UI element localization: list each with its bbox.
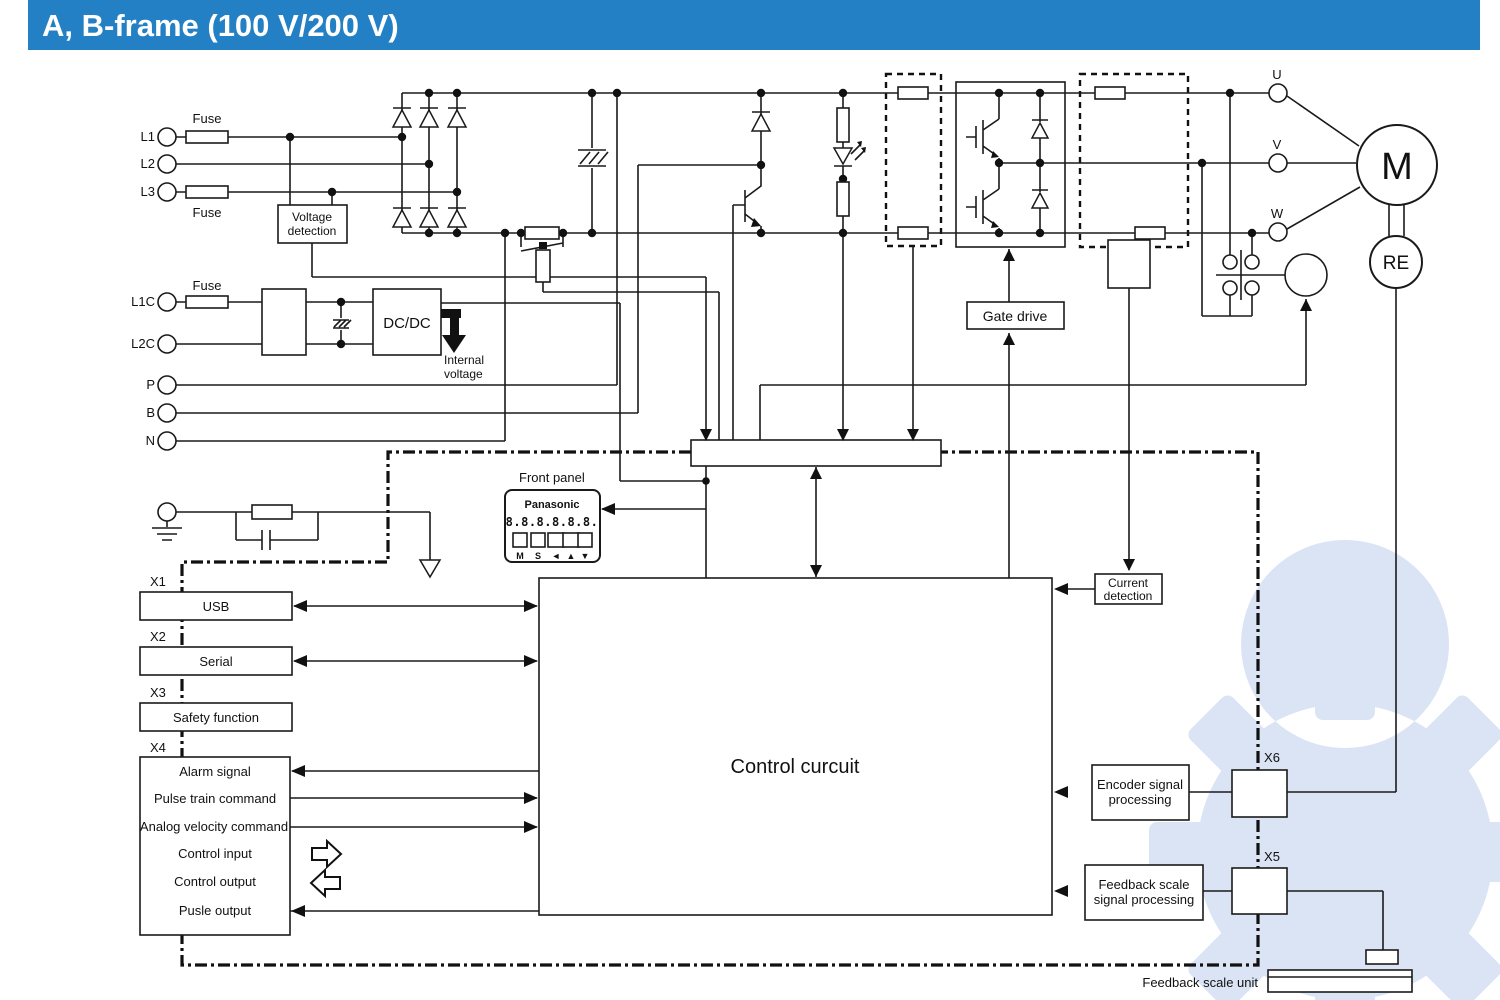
terminal-ground [158,503,176,521]
shunt-resistor-icon [898,87,928,99]
encoder-label: RE [1383,253,1409,274]
terminal-u [1269,84,1287,102]
terminal-label-l2c: L2C [131,336,155,351]
fuse-l1c-icon [186,296,228,308]
current-sensor-box-right [1080,74,1188,247]
panel-button-label: S [535,551,541,561]
inrush-relay-coil-icon [536,250,550,282]
seven-segment-display: 8.8.8.8.8.8. [506,515,599,529]
front-panel-caption: Front panel [519,470,585,485]
isolation-interface-wires [602,246,1306,578]
x5-connector-box [1232,868,1287,914]
panel-button-up[interactable] [563,533,579,547]
igbt-module-box [956,82,1065,247]
voltage-detection-output-wire [312,243,706,440]
encoder-processing-label: processing [1109,792,1172,807]
regen-diode-icon [752,112,770,131]
serial-label: Serial [199,654,232,669]
header-bar: A, B-frame (100 V/200 V) [28,0,1480,50]
x4-signal-label: Analog velocity command [140,819,288,834]
internal-voltage-arrow-icon [441,309,466,353]
voltage-detection-label: detection [288,224,337,238]
current-sensor-box-left [886,74,941,246]
connector-label-x4: X4 [150,740,166,755]
brake-relay-coil-icon [1285,254,1327,296]
bus-capacitor-wires [578,93,608,233]
terminal-l3 [158,183,176,201]
terminal-label-l3: L3 [141,184,155,199]
current-detection-wires [1056,288,1129,589]
charge-resistor-lower-icon [837,182,849,216]
safety-function-label: Safety function [173,710,259,725]
feedback-processing-label: signal processing [1094,892,1194,907]
terminal-label-w: W [1271,206,1284,221]
scale-read-head [1366,950,1398,964]
terminal-label-l1c: L1C [131,294,155,309]
connector-label-x1: X1 [150,574,166,589]
current-sensor-pickup [1108,240,1150,288]
terminal-label-l1: L1 [141,129,155,144]
x4-signal-label: Alarm signal [179,764,251,779]
terminal-b [158,404,176,422]
motor-labels: M RE [1381,146,1413,274]
terminal-l1 [158,128,176,146]
pbn-terminal-wires [176,93,761,441]
fuse-label: Fuse [193,278,222,293]
control-output-arrow-icon [311,870,340,896]
panel-button-set[interactable] [531,533,545,547]
current-detection-label: Current [1108,576,1149,590]
fuse-l1-icon [186,131,228,143]
panel-button-label: ▼ [581,551,590,561]
inrush-resistor-icon [525,227,559,239]
dynamic-brake-wires [1202,93,1285,316]
connector-label-x2: X2 [150,629,166,644]
terminal-w [1269,223,1287,241]
terminal-p [158,376,176,394]
brand-logo: Panasonic [524,499,579,511]
charge-resistor-upper-icon [837,108,849,142]
terminal-v [1269,154,1287,172]
shunt-resistor-icon [1135,227,1165,239]
diagram-canvas: K A, B-frame (100 V/200 V) [0,0,1500,1000]
shunt-resistor-icon [1095,87,1125,99]
connector-label-x6: X6 [1264,750,1280,765]
shunt-resistor-icon [898,227,928,239]
control-circuit-box [539,578,1052,915]
internal-voltage-label: Internal [444,353,484,367]
watermark-letter: K [1277,741,1425,970]
isolation-interface-bar [691,440,941,466]
charge-led-icon [834,148,852,166]
dcdc-label: DC/DC [383,315,431,332]
x4-signal-label: Control output [174,874,256,889]
encoder-processing-label: Encoder signal [1097,777,1183,792]
terminal-label-b: B [146,405,155,420]
terminal-label-v: V [1273,137,1282,152]
connector-label-x3: X3 [150,685,166,700]
terminal-label-n: N [146,433,155,448]
fuse-label: Fuse [193,205,222,220]
terminal-l1c [158,293,176,311]
page-title: A, B-frame (100 V/200 V) [42,8,399,43]
control-input-arrow-icon [312,841,341,867]
x4-signal-label: Pulse train command [154,791,276,806]
usb-label: USB [203,599,230,614]
panel-button-mode[interactable] [513,533,527,547]
terminal-label-l2: L2 [141,156,155,171]
signal-ground-icon [420,560,440,577]
regeneration-circuit-wires [733,93,761,440]
panel-button-down[interactable] [578,533,592,547]
front-panel: Panasonic 8.8.8.8.8.8. M S ◄ ▲ ▼ [505,490,600,562]
voltage-detection-label: Voltage [292,210,332,224]
internal-voltage-label: voltage [444,367,483,381]
terminal-label-u: U [1272,67,1281,82]
terminal-n [158,432,176,450]
panel-button-label: ◄ [552,551,561,561]
servo-driver-block-diagram: K A, B-frame (100 V/200 V) [0,0,1500,1000]
control-circuit-label: Control curcuit [731,756,860,778]
ground-resistor-icon [252,505,292,519]
x4-signal-label: Control input [178,846,252,861]
fuse-l3-icon [186,186,228,198]
panel-button-shift[interactable] [548,533,564,547]
watermark-gear-logo: K [1149,540,1500,1000]
inrush-relay-contact [539,242,547,249]
gate-drive-label: Gate drive [983,308,1048,324]
feedback-processing-label: Feedback scale [1098,877,1189,892]
panel-button-label: M [516,551,524,561]
feedback-scale-unit-label: Feedback scale unit [1142,975,1258,990]
current-detection-label: detection [1104,589,1153,603]
terminal-label-p: P [146,377,155,392]
terminal-l2 [158,155,176,173]
control-rectifier-box [262,289,306,355]
x6-connector-box [1232,770,1287,817]
motor-label: M [1381,146,1413,188]
panel-button-label: ▲ [567,551,576,561]
feedback-scale-bar [1268,970,1412,992]
fuse-label: Fuse [193,111,222,126]
connector-label-x5: X5 [1264,849,1280,864]
terminal-l2c [158,335,176,353]
x4-signal-label: Pusle output [179,903,252,918]
